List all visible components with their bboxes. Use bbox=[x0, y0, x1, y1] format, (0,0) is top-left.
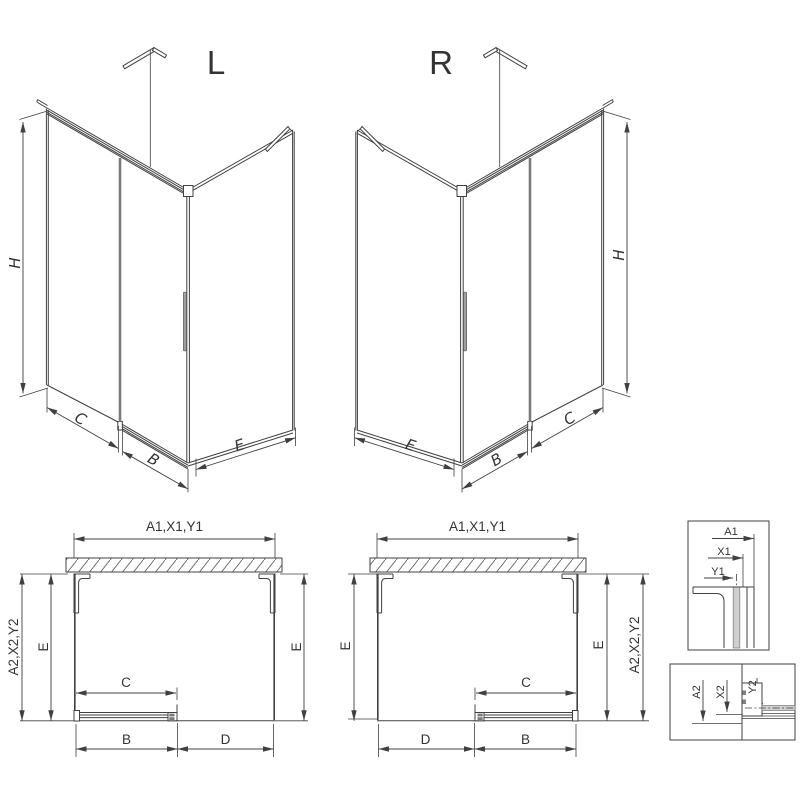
plan-right-width-label: A1,X1,Y1 bbox=[449, 519, 506, 534]
plan-left-depth-right-label: E bbox=[289, 642, 304, 651]
plan-left-door-width-label: B bbox=[122, 732, 131, 747]
iso-left-height-label: H bbox=[6, 257, 24, 268]
detail-y2-label: Y2 bbox=[747, 680, 759, 693]
iso-right-height-label: H bbox=[610, 249, 628, 260]
plan-left-door-travel-label: C bbox=[121, 675, 131, 690]
plan-right-depth-right-label: E bbox=[591, 640, 606, 649]
plan-left-width-label: A1,X1,Y1 bbox=[146, 519, 203, 534]
iso-view-left: L H C B E bbox=[6, 44, 296, 493]
detail-x2-label: X2 bbox=[715, 685, 727, 698]
variant-title-right: R bbox=[429, 44, 453, 81]
iso-right-side-label: E bbox=[403, 435, 418, 455]
plan-view-right: A1,X1,Y1 E E A2,X2,Y2 C D B bbox=[338, 519, 649, 757]
plan-left-depth-left-label: E bbox=[36, 642, 51, 651]
variant-title-left: L bbox=[207, 44, 225, 81]
iso-left-door-label: B bbox=[145, 449, 163, 470]
detail-y1-label: Y1 bbox=[711, 566, 724, 578]
plan-left-opening-label: D bbox=[221, 732, 231, 747]
plan-view-left: A1,X1,Y1 A2,X2,Y2 E E C B D bbox=[6, 519, 308, 757]
plan-right-opening-label: D bbox=[421, 732, 431, 747]
wall-hatch-right bbox=[370, 558, 586, 572]
plan-left-outer-width-label: A2,X2,Y2 bbox=[6, 618, 21, 675]
iso-left-fixed-label: C bbox=[71, 408, 90, 429]
iso-right-door-label: B bbox=[488, 449, 506, 470]
shower-enclosure-technical-drawing: L H C B E R H C B E A1,X1,Y1 A2,X2,Y2 E … bbox=[0, 0, 800, 800]
plan-right-outer-width-label: A2,X2,Y2 bbox=[627, 616, 642, 673]
detail-a1-label: A1 bbox=[724, 526, 737, 538]
drawing-canvas: L H C B E R H C B E A1,X1,Y1 A2,X2,Y2 E … bbox=[0, 0, 800, 800]
detail-bottom-rail: A2 X2 Y2 bbox=[670, 664, 795, 740]
detail-a2-label: A2 bbox=[691, 685, 703, 698]
plan-right-door-travel-label: C bbox=[521, 675, 531, 690]
plan-right-depth-left-label: E bbox=[338, 641, 353, 650]
iso-view-right: R H C B E bbox=[355, 44, 631, 493]
plan-right-door-width-label: B bbox=[521, 732, 530, 747]
detail-wall-profile: A1 X1 Y1 bbox=[688, 521, 769, 650]
detail-x1-label: X1 bbox=[717, 546, 730, 558]
iso-right-fixed-label: C bbox=[560, 408, 579, 429]
wall-hatch-left bbox=[66, 558, 282, 572]
